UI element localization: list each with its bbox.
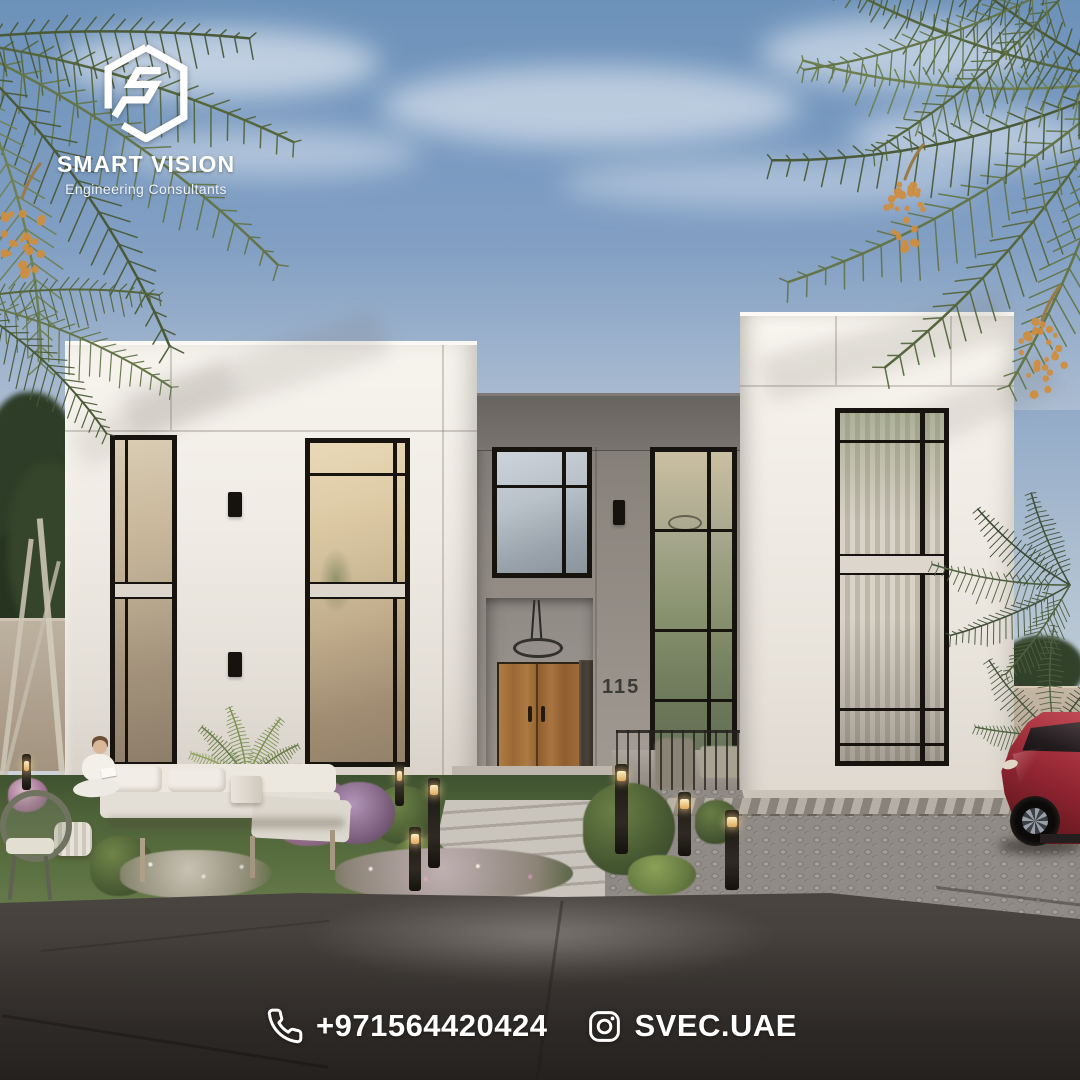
bollard-glow — [411, 834, 419, 844]
bollard-light — [615, 764, 628, 854]
wall-sconce — [613, 500, 625, 525]
window — [110, 435, 177, 767]
daybed-leg — [140, 838, 145, 882]
cloud — [560, 158, 980, 208]
floor-slab-band — [310, 582, 405, 599]
window-mullion — [655, 629, 732, 632]
floor-slab-band — [840, 554, 944, 575]
window-mullion — [840, 708, 944, 711]
glass-shading — [840, 621, 944, 761]
bollard-glow — [24, 761, 29, 771]
daybed-shadow — [108, 818, 344, 828]
window-mullion — [125, 440, 128, 762]
brand-tagline: Engineering Consultants — [50, 181, 242, 197]
interior-plant-reflection — [319, 548, 353, 614]
door-split — [536, 664, 538, 768]
wicker-chair-cushion — [6, 838, 54, 854]
center-parapet-band — [477, 393, 746, 451]
brand-logo: SMART VISION Engineering Consultants — [50, 44, 242, 197]
woman-head — [93, 740, 107, 754]
window-mullion — [393, 443, 397, 762]
pendant-ring-light — [513, 638, 563, 658]
wall-sconce — [228, 492, 242, 517]
bollard-glow — [680, 799, 689, 809]
window-glass — [655, 452, 732, 775]
window-glass — [115, 440, 172, 762]
phone-number: +971564420424 — [316, 1008, 548, 1044]
car-wheel-rim — [1022, 808, 1048, 834]
bollard-light — [409, 827, 421, 891]
bollard-light — [22, 754, 31, 790]
house-number: 115 — [602, 676, 640, 699]
cloud — [380, 66, 800, 146]
bollard-light — [678, 792, 691, 856]
window — [835, 408, 949, 766]
facade-joint — [442, 345, 444, 791]
bollard-light — [725, 810, 739, 890]
daybed-pillow — [168, 768, 226, 792]
daybed-leg — [330, 830, 335, 870]
wall-sconce — [228, 652, 242, 677]
window-mullion — [655, 529, 732, 532]
window-mullion — [840, 743, 944, 746]
instagram-handle: SVEC.UAE — [635, 1008, 797, 1044]
bollard-light — [428, 778, 440, 868]
window-mullion — [655, 699, 732, 702]
door-sidelight — [579, 660, 593, 770]
window-mullion — [840, 440, 944, 443]
floor-slab-band — [115, 582, 172, 599]
bollard-glow — [727, 817, 737, 827]
bollard-glow — [430, 785, 438, 795]
cloud — [850, 108, 1080, 168]
window-mullion — [497, 485, 587, 488]
window-mullion — [562, 452, 566, 573]
instagram-icon — [586, 1008, 623, 1045]
poster-canvas: 115 — [0, 0, 1080, 1080]
brand-name: SMART VISION — [50, 151, 242, 178]
bollard-light — [395, 764, 404, 806]
door-handle — [528, 706, 532, 722]
window — [492, 447, 592, 578]
window — [305, 438, 410, 767]
car-rocker-trim — [1040, 834, 1080, 843]
bollard-glow — [397, 771, 402, 781]
window-mullion — [707, 452, 711, 775]
phone-icon — [266, 1007, 304, 1045]
window-mullion — [310, 473, 405, 476]
contact-bar: +971564420424 SVEC.UAE — [266, 1000, 797, 1052]
daybed-leg — [250, 836, 255, 878]
greenery-reflection — [840, 413, 944, 523]
facade-joint — [595, 447, 597, 793]
cloud — [760, 18, 1040, 88]
door-handle — [541, 706, 545, 722]
window-glass — [497, 452, 587, 573]
entry-door — [497, 662, 581, 774]
planter-pot — [231, 776, 262, 803]
hexagon-s-logo-icon — [103, 44, 189, 142]
bollard-glow — [617, 771, 626, 781]
